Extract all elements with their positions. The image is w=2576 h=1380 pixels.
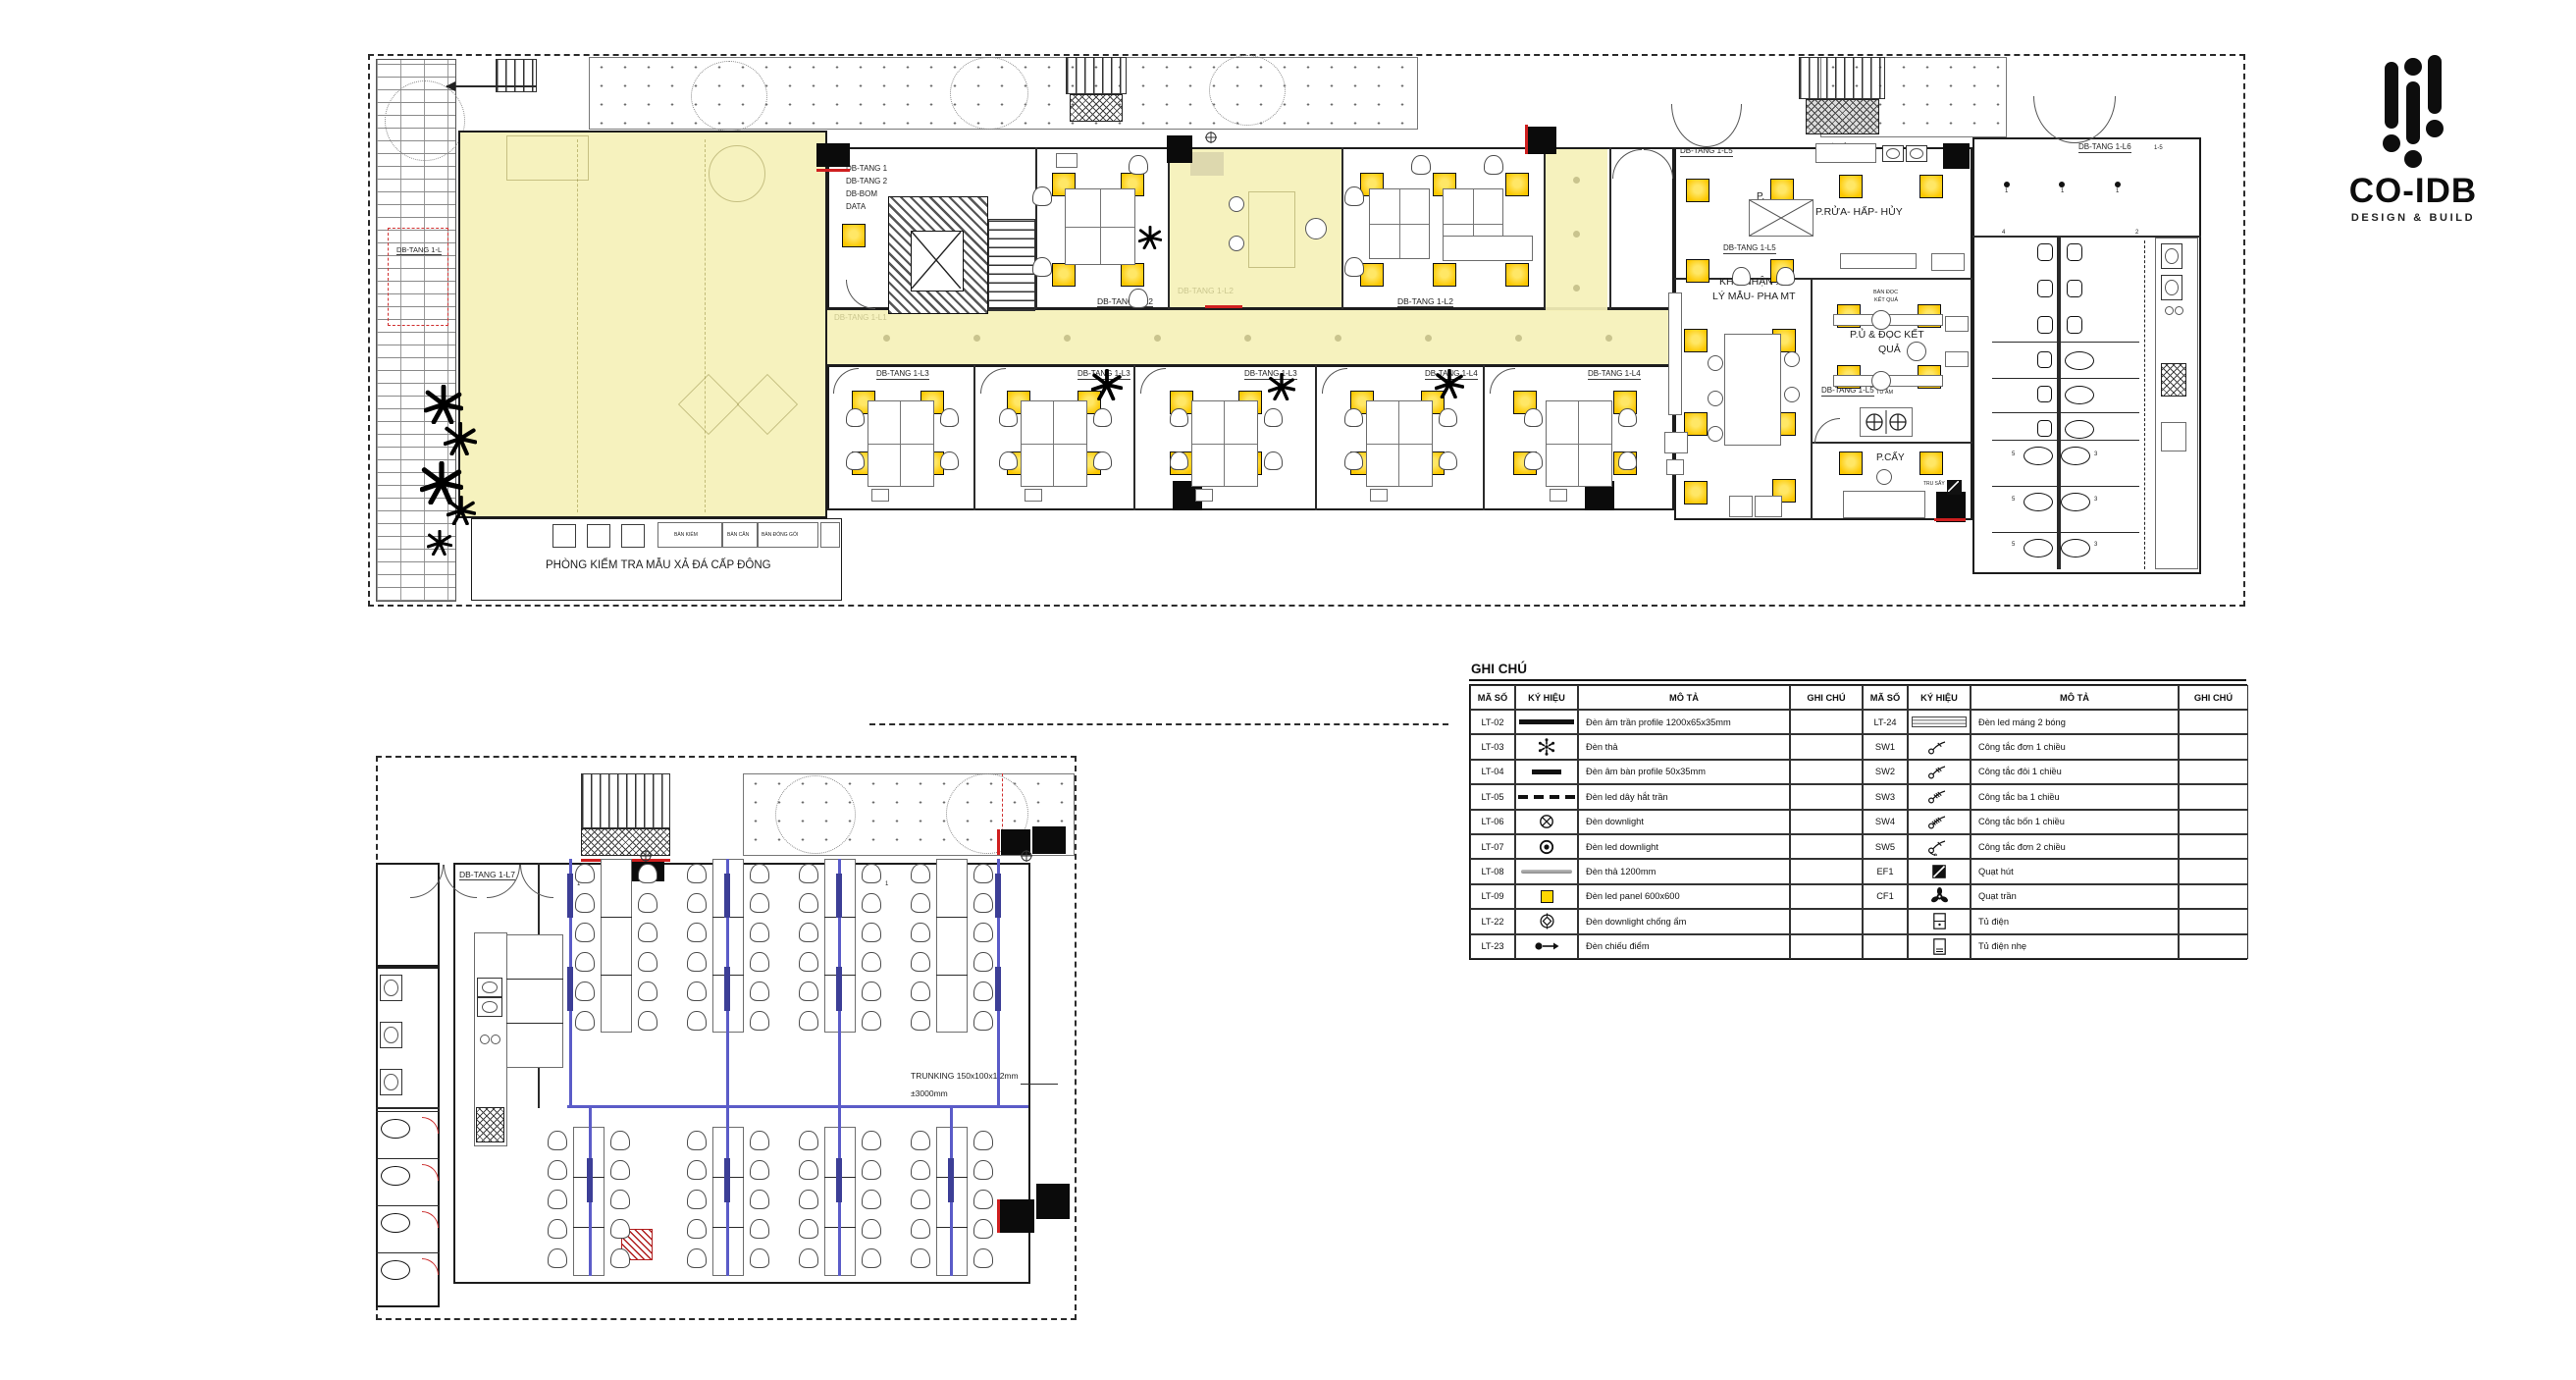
office-chair	[1264, 408, 1283, 427]
legend-symbol-striped-rect-icon	[1908, 710, 1971, 734]
wc-toilet	[2061, 447, 2090, 465]
logo-mark-dot	[2426, 120, 2444, 137]
legend-note	[1790, 884, 1863, 909]
downlight-dot	[1244, 335, 1251, 342]
bottom-plan-label: 1	[885, 881, 888, 887]
structural-column	[999, 1199, 1034, 1233]
printer	[1195, 489, 1213, 502]
top-plan-label: DB-TANG 1-L2	[1397, 297, 1453, 307]
incubator	[1871, 310, 1891, 330]
dining-chair	[973, 864, 993, 883]
dining-chair	[911, 1160, 930, 1180]
stairs	[988, 219, 1035, 311]
legend-symbol-circle-diamond-icon	[1515, 909, 1578, 933]
legend-header: GHI CHÚ	[2179, 685, 2248, 710]
led-panel-600x600	[1505, 263, 1529, 287]
top-plan-label: 5	[2012, 497, 2015, 503]
x-table	[1749, 199, 1814, 237]
washbasin	[380, 975, 402, 1001]
dining-chair	[687, 1219, 707, 1239]
plant-icon	[1268, 373, 1295, 400]
legend-code: SW5	[1863, 834, 1908, 859]
dining-chair	[687, 1190, 707, 1209]
top-plan-label: 1	[2116, 188, 2119, 194]
dining-chair	[687, 1248, 707, 1268]
legend-note	[2179, 859, 2248, 883]
top-plan-label: 3	[2094, 542, 2097, 548]
partition	[1609, 147, 1611, 309]
legend-symbol-switch-1-icon: >	[1908, 734, 1971, 759]
top-plan-label: KẾT QUẢ	[1874, 298, 1898, 304]
workshop-hall	[458, 131, 827, 518]
dining-chair	[750, 952, 769, 972]
logo-mark-bar	[2428, 55, 2442, 114]
dining-chair	[799, 1160, 818, 1180]
dining-chair	[973, 952, 993, 972]
top-plan-label: 1	[2061, 188, 2064, 194]
office-chair	[1439, 451, 1457, 470]
legend-note	[2179, 834, 2248, 859]
red-accent	[816, 169, 850, 172]
top-plan-label: PHÒNG KIỂM TRA MẪU XẢ ĐÁ CẤP ĐÔNG	[546, 559, 771, 571]
lab-chair	[1776, 267, 1795, 286]
led-panel-600x600	[1052, 263, 1076, 287]
stall-wall	[1992, 486, 2139, 487]
top-plan-label: 2	[2135, 230, 2138, 236]
printer	[1056, 153, 1078, 168]
side-bench	[1668, 292, 1682, 415]
dining-chair	[911, 1131, 930, 1150]
top-plan-label: DB-TANG 2	[846, 178, 887, 186]
red-accent	[1205, 305, 1242, 308]
legend-code: EF1	[1863, 859, 1908, 883]
hall-faint-table	[506, 135, 589, 181]
legend-symbol-cabinet-icon	[1908, 909, 1971, 933]
led-panel-600x600	[1686, 179, 1709, 202]
office-chair	[1093, 408, 1112, 427]
logo-mark-bar	[2385, 62, 2398, 129]
partition	[1315, 365, 1317, 510]
dining-chair	[750, 1190, 769, 1209]
legend-description: Công tắc đơn 1 chiều	[1971, 734, 2179, 759]
downlight-dot	[1573, 231, 1580, 238]
meeting-table	[1248, 191, 1295, 268]
wc-toilet	[2024, 539, 2053, 557]
led-panel-600x600	[1121, 263, 1144, 287]
trunking-sleeve	[995, 874, 1001, 918]
lab-stool	[1876, 469, 1892, 485]
legend-header: KÝ HIỆU	[1515, 685, 1578, 710]
top-plan-label: DB-TANG 1-L5	[1723, 244, 1776, 254]
dining-chair	[973, 893, 993, 913]
partition	[1544, 147, 1546, 309]
legend-code: LT-22	[1470, 909, 1515, 933]
legend-header: KÝ HIỆU	[1908, 685, 1971, 710]
partition	[1133, 365, 1135, 510]
office-chair	[1524, 408, 1543, 427]
dining-chair	[548, 1131, 567, 1150]
office-chair	[999, 451, 1018, 470]
legend-table: MÃ SỐKÝ HIỆUMÔ TẢGHI CHÚMÃ SỐKÝ HIỆUMÔ T…	[1469, 684, 2247, 960]
legend-code	[1863, 934, 1908, 959]
office-chair	[1411, 155, 1431, 175]
led-panel-600x600	[1839, 451, 1863, 475]
dining-chair	[799, 982, 818, 1001]
office-chair	[1524, 451, 1543, 470]
structural-column	[816, 143, 850, 167]
legend-header: MÃ SỐ	[1863, 685, 1908, 710]
reserved-area-red	[388, 228, 448, 326]
legend-title-underline	[1469, 679, 2246, 681]
dining-chair	[911, 1219, 930, 1239]
legend-description: Tủ điện	[1971, 909, 2179, 933]
printer	[871, 489, 889, 502]
dining-chair	[638, 1011, 657, 1031]
desk-cluster	[867, 400, 934, 487]
partition	[1168, 147, 1170, 309]
dining-table	[936, 859, 968, 1033]
dining-chair	[911, 1011, 930, 1031]
stall-wall	[1992, 440, 2139, 441]
office-chair	[1032, 257, 1052, 277]
incubator	[1871, 371, 1891, 391]
dining-chair	[575, 952, 595, 972]
legend-note	[1790, 710, 1863, 734]
junction-dot	[2004, 182, 2010, 187]
stall-wall	[376, 1158, 440, 1159]
roll-holder	[2165, 306, 2174, 315]
junction-dot	[2115, 182, 2121, 187]
office-chair	[1264, 451, 1283, 470]
sink	[2161, 275, 2182, 300]
top-plan-label: DB-TANG 1-L6	[2078, 143, 2131, 153]
property-line	[869, 723, 1448, 725]
legend-symbol-gray-line-icon	[1515, 859, 1578, 883]
wc-toilet	[2024, 447, 2053, 465]
dining-chair	[638, 952, 657, 972]
dining-chair	[862, 1160, 881, 1180]
legend-symbol-thick-line-icon	[1515, 710, 1578, 734]
dimension-arrow	[441, 81, 455, 91]
stall-wall	[376, 1252, 440, 1253]
lab-stool	[1708, 355, 1723, 371]
incubator	[1907, 342, 1926, 361]
canteen-landing	[581, 828, 670, 856]
lab-stool	[1708, 426, 1723, 442]
dining-chair	[750, 1219, 769, 1239]
dining-chair	[610, 1248, 630, 1268]
dining-chair	[973, 982, 993, 1001]
dining-chair	[687, 893, 707, 913]
legend-description: Đèn led downlight	[1578, 834, 1790, 859]
legend-symbol-pendant-cluster-icon	[1515, 734, 1578, 759]
dining-chair	[687, 952, 707, 972]
top-plan-label: 4	[2002, 230, 2005, 236]
dining-chair	[750, 1248, 769, 1268]
legend-note	[2179, 734, 2248, 759]
legend-note	[2179, 760, 2248, 784]
hall-faint-round-table	[709, 145, 765, 202]
legend-description: Đèn chiếu điểm	[1578, 934, 1790, 959]
legend-note	[2179, 710, 2248, 734]
red-accent	[997, 1199, 1000, 1233]
legend-description: Tủ điện nhẹ	[1971, 934, 2179, 959]
downlight-dot	[1154, 335, 1161, 342]
trunking-main	[567, 1105, 1028, 1108]
office-chair	[846, 451, 865, 470]
led-panel-600x600	[1919, 175, 1943, 198]
office-chair	[940, 451, 959, 470]
led-panel-600x600	[1433, 263, 1456, 287]
office-chair	[1344, 257, 1364, 277]
dining-chair	[862, 1190, 881, 1209]
circuit-dashed-line	[2144, 240, 2145, 569]
dining-chair	[862, 1011, 881, 1031]
legend-description: Đèn led dây hắt trần	[1578, 784, 1790, 809]
top-plan-label: 5	[2012, 451, 2015, 457]
legend-description: Quạt trần	[1971, 884, 2179, 909]
urinal	[2037, 351, 2052, 368]
legend-code: CF1	[1863, 884, 1908, 909]
legend-note	[1790, 909, 1863, 933]
dining-chair	[638, 864, 657, 883]
wc-toilet	[381, 1213, 410, 1233]
legend-note	[2179, 909, 2248, 933]
legend-code	[1863, 909, 1908, 933]
tu-mat	[1729, 496, 1753, 517]
legend-description: Đèn âm bàn profile 50x35mm	[1578, 760, 1790, 784]
toilet-center-wall	[2057, 236, 2061, 569]
office-chair	[1032, 186, 1052, 206]
stall-wall	[1992, 378, 2139, 379]
survey-point-icon	[1021, 850, 1032, 862]
exhaust-fan-icon	[1947, 480, 1962, 495]
legend-code: SW2	[1863, 760, 1908, 784]
table-joint	[936, 975, 968, 976]
legend-description: Quạt hút	[1971, 859, 2179, 883]
elevator-x-icon	[912, 232, 961, 289]
burner-icon	[480, 1035, 490, 1044]
trunking-sleeve	[724, 967, 730, 1011]
red-accent	[997, 829, 1000, 855]
legend-note	[1790, 810, 1863, 834]
top-plan-label: P.RỬA- HẤP- HỦY	[1815, 207, 1903, 218]
survey-point-icon	[1205, 132, 1217, 143]
plant-icon	[1435, 369, 1464, 398]
legend-description: Công tắc ba 1 chiều	[1971, 784, 2179, 809]
stove	[476, 1107, 504, 1142]
dining-chair	[687, 923, 707, 942]
burner-icon	[491, 1035, 500, 1044]
legend-code: LT-08	[1470, 859, 1515, 883]
structural-column	[1032, 826, 1066, 854]
partition	[376, 1107, 440, 1109]
drawing-canvas: GHI CHÚ MÃ SỐKÝ HIỆUMÔ TẢGHI CHÚMÃ SỐKÝ …	[0, 0, 2576, 1380]
urinal	[2067, 243, 2082, 261]
legend-description: Công tắc bốn 1 chiều	[1971, 810, 2179, 834]
legend-symbol-ceiling-fan-icon	[1908, 884, 1971, 909]
legend-note	[1790, 734, 1863, 759]
dining-chair	[911, 952, 930, 972]
ban-can-box	[1664, 432, 1688, 453]
plant-icon	[1091, 369, 1123, 400]
stall-wall	[376, 1205, 440, 1206]
exterior-stair	[1799, 57, 1885, 99]
urinal	[2037, 280, 2053, 297]
dining-chair	[687, 864, 707, 883]
office-chair	[1618, 408, 1637, 427]
office-chair	[1344, 408, 1363, 427]
downlight-dot	[1425, 335, 1432, 342]
legend-code: LT-05	[1470, 784, 1515, 809]
dining-chair	[575, 893, 595, 913]
legend-code: SW3	[1863, 784, 1908, 809]
dining-chair	[548, 1219, 567, 1239]
office-chair	[1618, 451, 1637, 470]
legend-symbol-circle-dot-icon	[1515, 834, 1578, 859]
small-box	[1666, 459, 1684, 475]
legend-description: Đèn thả	[1578, 734, 1790, 759]
lab-stool	[1708, 391, 1723, 406]
lab-stool	[1784, 351, 1800, 367]
ban-kiem-con-trung	[1840, 253, 1917, 269]
wc-toilet	[2061, 539, 2090, 557]
office-chair	[940, 408, 959, 427]
stall-wall	[1992, 532, 2139, 533]
trunking-sleeve	[836, 874, 842, 918]
meeting-armchair	[1305, 218, 1327, 239]
legend-description: Đèn led máng 2 bóng	[1971, 710, 2179, 734]
top-plan-label: TRU SẤY	[1923, 482, 1945, 487]
led-panel-600x600	[842, 224, 866, 247]
legend-code: LT-06	[1470, 810, 1515, 834]
trunking-sleeve	[724, 874, 730, 918]
trunking-sleeve	[567, 967, 573, 1011]
canteen-toilets	[376, 967, 440, 1307]
dining-chair	[973, 1160, 993, 1180]
exterior-stair	[1066, 57, 1127, 94]
dining-chair	[638, 982, 657, 1001]
kitchen-sink	[477, 997, 502, 1017]
legend-code: SW1	[1863, 734, 1908, 759]
service-box	[2161, 422, 2186, 451]
top-plan-label: QUẢ	[1878, 345, 1901, 355]
dining-chair	[548, 1160, 567, 1180]
trunking-sleeve	[587, 1158, 593, 1202]
legend-code: LT-07	[1470, 834, 1515, 859]
logo-mark-dot	[2404, 150, 2422, 168]
dining-chair	[575, 982, 595, 1001]
meeting-chair	[1229, 236, 1244, 251]
tu-dong	[1755, 496, 1782, 517]
legend-code: LT-02	[1470, 710, 1515, 734]
dining-chair	[750, 893, 769, 913]
trunking-sleeve	[567, 874, 573, 918]
dining-chair	[799, 1190, 818, 1209]
legend-symbol-dashed-line-icon	[1515, 784, 1578, 809]
wc-toilet	[2024, 493, 2053, 511]
office-chair	[1344, 186, 1364, 206]
legend-note	[1790, 760, 1863, 784]
tu-am-box	[1945, 316, 1969, 332]
legend-symbol-dot-arrow-icon	[1515, 934, 1578, 959]
red-accent	[1934, 518, 1966, 521]
dining-chair	[750, 923, 769, 942]
printer	[1550, 489, 1567, 502]
ban-thi-nghiem	[1724, 334, 1781, 446]
led-panel-600x600	[1684, 329, 1708, 352]
dining-chair	[911, 982, 930, 1001]
autoclaves	[1860, 407, 1913, 437]
top-plan-label: BÀN KIỂM	[674, 533, 698, 538]
desk-cluster	[1546, 400, 1612, 487]
tree	[691, 61, 767, 132]
partition	[1483, 365, 1485, 510]
dining-chair	[575, 1011, 595, 1031]
top-plan-label: 3	[2094, 497, 2097, 503]
led-panel-600x600	[1684, 481, 1708, 504]
office-chair	[1170, 451, 1188, 470]
partition	[973, 365, 975, 510]
trunking-sleeve	[995, 967, 1001, 1011]
downlight-dot	[1335, 335, 1341, 342]
top-plan-label: TỦ ẤM	[1876, 391, 1893, 397]
table-joint	[936, 917, 968, 918]
downlight-dot	[1515, 335, 1522, 342]
stool	[552, 524, 576, 548]
plant-icon	[1138, 226, 1162, 249]
downlight-dot	[973, 335, 980, 342]
legend-symbol-yellow-square-icon	[1515, 884, 1578, 909]
top-plan-label: BÀN CÂN	[727, 533, 749, 538]
meeting-room-cabinet	[1190, 152, 1224, 176]
junction-dot	[2059, 182, 2065, 187]
top-plan-label: 1	[2005, 188, 2008, 194]
dining-chair	[575, 864, 595, 883]
led-panel-600x600	[1919, 451, 1943, 475]
top-plan-label: 1-5	[2154, 145, 2163, 151]
exterior-landing	[1070, 94, 1123, 122]
dining-chair	[610, 1160, 630, 1180]
be-dieu-nhiet	[1843, 491, 1925, 518]
dining-chair	[750, 982, 769, 1001]
wc-toilet	[2061, 493, 2090, 511]
table-joint	[601, 975, 632, 976]
legend-title: GHI CHÚ	[1471, 662, 1527, 676]
printer	[1025, 489, 1042, 502]
dining-chair	[862, 923, 881, 942]
hall-dashed-guide	[705, 139, 706, 512]
dining-chair	[862, 1131, 881, 1150]
plant-icon	[427, 530, 452, 556]
dining-chair	[687, 1131, 707, 1150]
lab-sink	[1906, 145, 1927, 162]
dining-chair	[750, 864, 769, 883]
legend-code: LT-09	[1470, 884, 1515, 909]
legend-symbol-switch-2-icon: >	[1908, 760, 1971, 784]
top-plan-label: P.Ủ & ĐỌC KẾT	[1850, 330, 1924, 341]
legend-code: LT-04	[1470, 760, 1515, 784]
downlight-dot	[1573, 177, 1580, 184]
may-cat-nuoc	[1815, 143, 1876, 163]
dining-chair	[911, 864, 930, 883]
red-accent	[1525, 125, 1528, 154]
top-plan-label: LÝ MẪU- PHA MT	[1712, 292, 1796, 302]
legend-note	[1790, 834, 1863, 859]
legend-note	[2179, 810, 2248, 834]
structural-column	[1943, 143, 1970, 169]
stall-wall	[376, 1111, 440, 1112]
